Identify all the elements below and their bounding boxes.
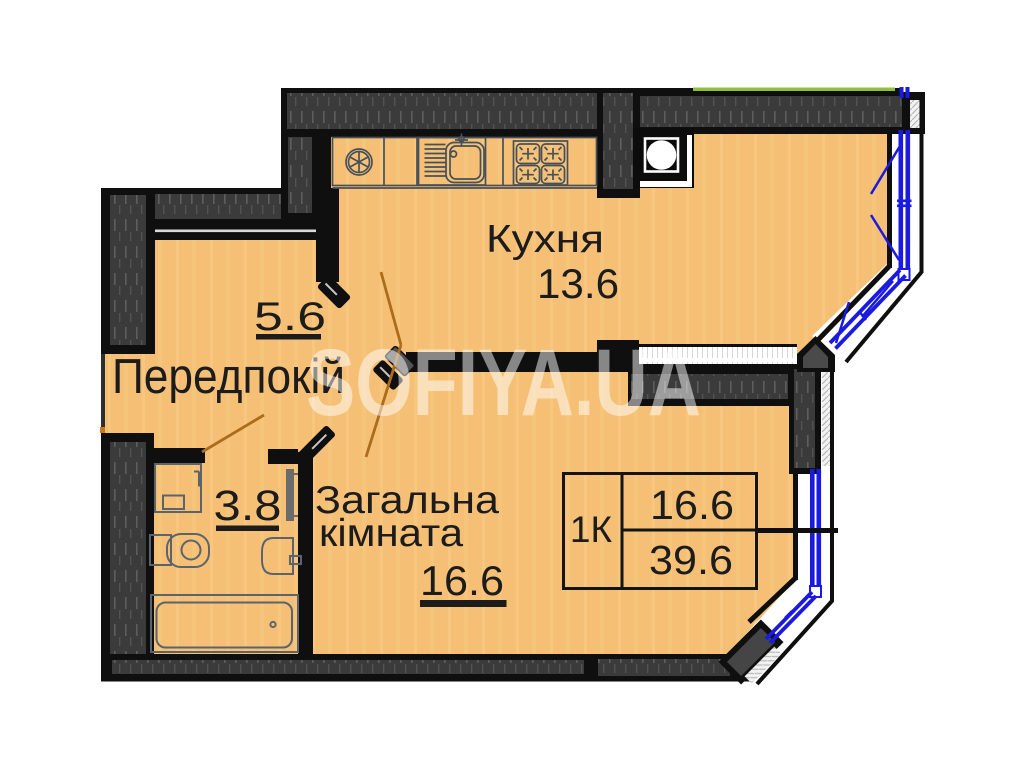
svg-text:SOFIYA.UA: SOFIYA.UA xyxy=(306,330,701,436)
svg-text:1К: 1К xyxy=(570,509,613,550)
svg-text:16.6: 16.6 xyxy=(650,482,734,528)
svg-text:16.6: 16.6 xyxy=(420,557,504,604)
svg-text:13.6: 13.6 xyxy=(537,260,619,307)
svg-text:кімната: кімната xyxy=(319,512,464,555)
svg-text:3.8: 3.8 xyxy=(214,482,282,530)
svg-text:Кухня: Кухня xyxy=(486,218,604,261)
svg-text:39.6: 39.6 xyxy=(649,537,733,583)
